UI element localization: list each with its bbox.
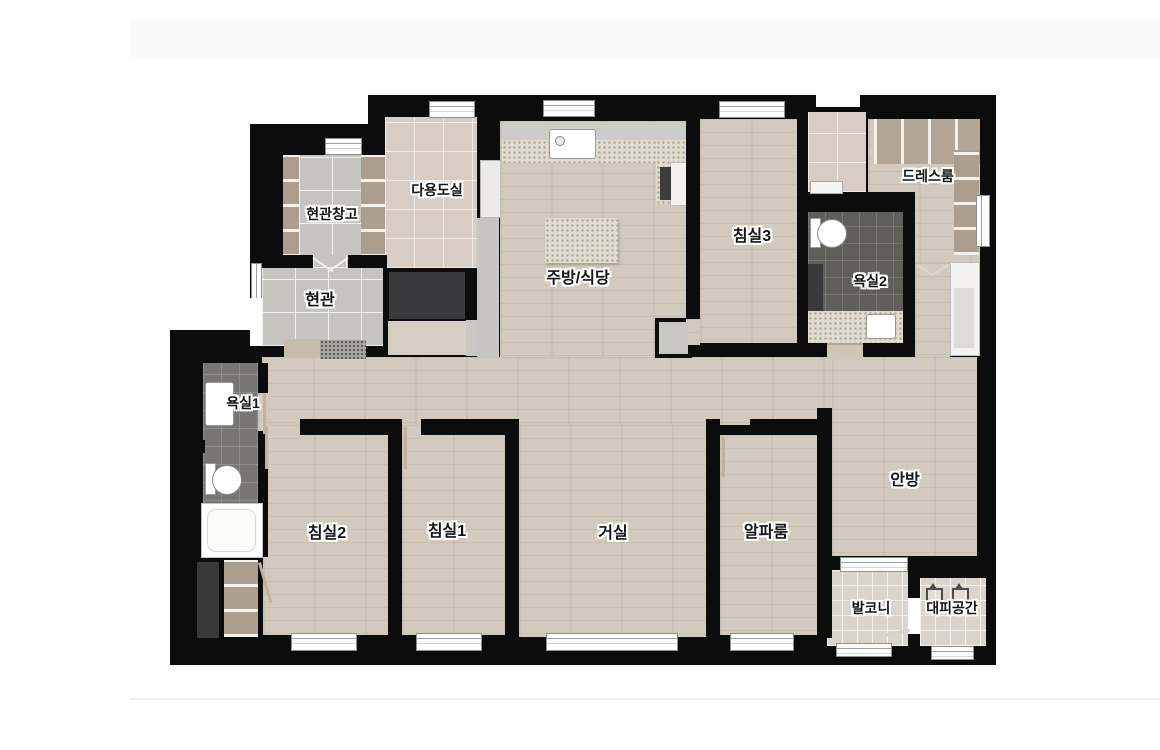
- storage-window: [325, 138, 362, 155]
- bedroom2-closet: [224, 560, 258, 637]
- room-label-kitchen-dining: 주방/식당: [546, 264, 609, 288]
- entrance-threshold: [320, 340, 366, 359]
- wall-bedroom3-bottom: [688, 343, 798, 357]
- refuge-window: [931, 646, 974, 660]
- wall-bedroom1-living: [505, 419, 519, 637]
- utility-appliance: [389, 272, 465, 319]
- master-balcony-window: [840, 557, 908, 572]
- bedroom2-door-leaf: [265, 427, 268, 469]
- wall-storage-entrance-a: [262, 255, 313, 268]
- wall-bedroom2-bedroom1: [388, 419, 402, 637]
- wall-shell-left-stub: [170, 330, 262, 345]
- wardrobe-inner: [954, 288, 974, 348]
- bedroom3-window: [719, 101, 785, 118]
- room-label-utility-room: 다용도실: [411, 180, 463, 200]
- room-label-bathroom-1: 욕실1: [226, 393, 260, 413]
- floorplan-canvas: 현관창고 다용도실 주방/식당 침실3 드레스룸 욕실2 현관 욕실1 침실2 …: [0, 0, 1160, 750]
- bedroom1-window: [416, 633, 482, 651]
- wall-bath1-stub: [178, 440, 205, 453]
- bathroom1-toilet-bowl: [212, 465, 242, 495]
- wall-alpha-master: [817, 408, 832, 638]
- bedroom3-door-leaf: [659, 322, 688, 354]
- right-wall-window: [976, 195, 990, 247]
- wall-bath1-right-a: [258, 363, 268, 393]
- wall-storage-entrance-b: [348, 255, 387, 268]
- room-label-bathroom-2: 욕실2: [853, 271, 887, 291]
- room-label-refuge-space: 대피공간: [926, 598, 978, 618]
- entry-door-opening: [250, 298, 262, 346]
- room-label-bedroom-2: 침실2: [308, 519, 346, 543]
- kitchen-side-cabinet: [477, 218, 499, 357]
- alpha-door-leaf: [722, 437, 725, 477]
- hall-to-master: [915, 263, 950, 359]
- room-label-master-bedroom: 안방: [890, 466, 919, 490]
- laundry-niche-floor: [808, 112, 866, 192]
- wall-bedroom3-niche: [797, 95, 808, 345]
- room-label-alpha-room: 알파룸: [744, 518, 788, 542]
- bedroom1-door-leaf: [404, 427, 407, 469]
- kitchen-island: [545, 218, 618, 263]
- master-floor: [832, 357, 977, 558]
- bathroom2-toilet-bowl: [817, 219, 847, 248]
- room-label-living-room: 거실: [598, 519, 627, 543]
- corridor-floor: [262, 357, 832, 425]
- kitchen-window: [543, 100, 595, 117]
- bedroom2-window: [291, 633, 357, 651]
- storage-shelf-left: [283, 155, 299, 257]
- wall-living-alpha: [706, 419, 720, 637]
- room-label-dress-room: 드레스룸: [902, 166, 954, 186]
- wall-bath2-right: [903, 198, 915, 345]
- wall-alpha-top: [750, 419, 818, 435]
- room-label-bedroom-3: 침실3: [733, 222, 771, 246]
- wall-bedroom1-top: [421, 419, 513, 435]
- cooktop: [660, 167, 671, 200]
- storage-shelf-right: [361, 155, 387, 257]
- shaft: [197, 562, 219, 638]
- kitchen-faucet: [555, 136, 565, 146]
- bath2-door-sill: [827, 343, 863, 359]
- bottom-divider: [130, 698, 1160, 700]
- alpha-window: [730, 633, 794, 651]
- refuge-door-opening: [908, 598, 920, 634]
- living-window: [546, 633, 678, 651]
- wall-bedroom2-top: [300, 419, 390, 435]
- entrance-step: [284, 339, 320, 357]
- wall-bath2-top: [797, 192, 915, 212]
- room-label-bedroom-1: 침실1: [428, 517, 466, 541]
- balcony-window: [836, 643, 892, 657]
- wall-kitchen-bedroom3: [686, 95, 700, 319]
- kitchen-tall-cabinet: [480, 160, 501, 218]
- utility-window: [429, 101, 475, 118]
- wall-bath2-bottom-a: [797, 343, 827, 357]
- bathroom2-washbasin: [866, 314, 896, 339]
- bathtub-inner: [207, 509, 256, 552]
- utility-cabinet: [388, 321, 466, 355]
- laundry-shelf: [810, 181, 843, 194]
- room-label-entrance-storage: 현관창고: [306, 204, 358, 224]
- top-band: [130, 19, 1160, 57]
- room-label-entrance: 현관: [305, 286, 334, 310]
- bedroom3-door-gap: [686, 319, 700, 345]
- room-label-balcony: 발코니: [852, 598, 891, 618]
- wall-bath2-bottom-b: [863, 343, 915, 357]
- niche-top-opening: [816, 95, 860, 107]
